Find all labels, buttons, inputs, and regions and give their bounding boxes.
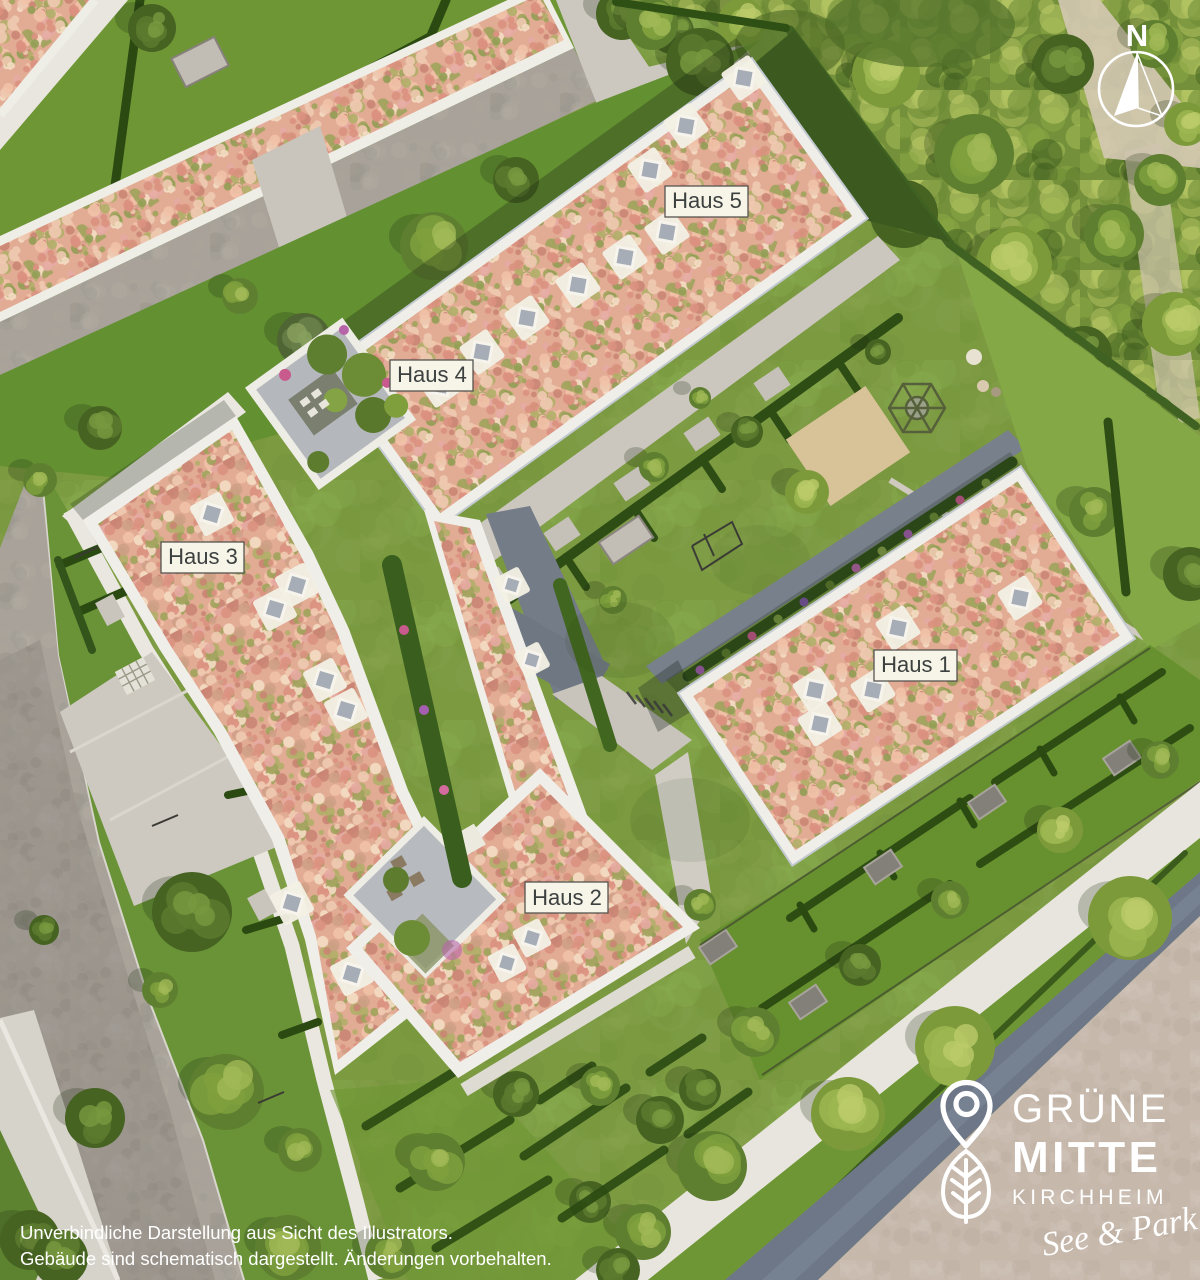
- svg-text:Haus 5: Haus 5: [672, 188, 742, 213]
- svg-text:GRÜNE: GRÜNE: [1012, 1087, 1169, 1131]
- svg-text:Haus 2: Haus 2: [532, 885, 602, 910]
- svg-text:Haus 4: Haus 4: [397, 362, 467, 387]
- svg-text:Haus 1: Haus 1: [881, 652, 951, 677]
- svg-text:Unverbindliche Darstellung aus: Unverbindliche Darstellung aus Sicht des…: [20, 1222, 453, 1243]
- svg-text:Gebäude sind schematisch darge: Gebäude sind schematisch dargestellt. Än…: [20, 1248, 552, 1269]
- svg-text:Haus 3: Haus 3: [168, 544, 238, 569]
- svg-text:MITTE: MITTE: [1012, 1133, 1161, 1182]
- svg-text:KIRCHHEIM: KIRCHHEIM: [1012, 1186, 1168, 1209]
- svg-text:N: N: [1126, 18, 1148, 53]
